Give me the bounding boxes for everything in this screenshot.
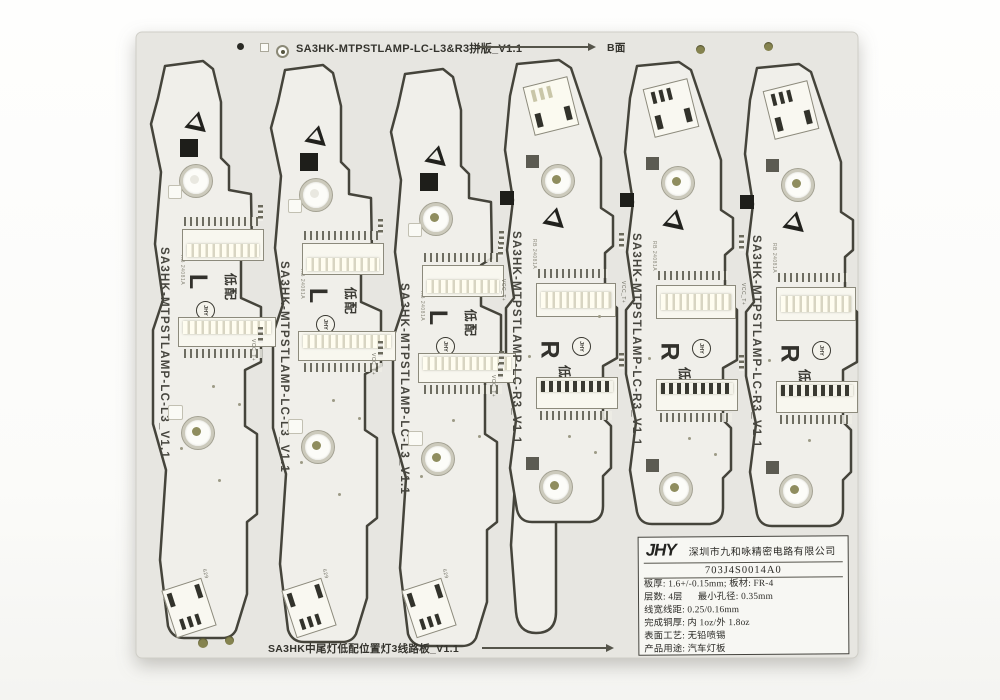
board-label: SA3HK-MTPSTLAMP-LC-L3_V1.1 <box>278 261 290 473</box>
edge-pads <box>739 355 744 371</box>
panel-title: SA3HK-MTPSTLAMP-LC-L3&R3拼版_V1.1 <box>296 40 522 56</box>
tilted-footprint <box>643 78 700 138</box>
board-2-silkscreen: SA3HK-MTPSTLAMP-LC-L3_V1.1 RB 24081A L 低… <box>266 69 384 640</box>
edge-pads <box>619 233 624 249</box>
board-label: SA3HK-MTPSTLAMP-LC-R3_V1.1 <box>510 231 522 444</box>
marking-letter: R <box>535 340 564 358</box>
fiducial-square <box>260 43 269 52</box>
marking-letter: L <box>423 310 452 325</box>
mounting-hole <box>182 417 214 449</box>
gray-square-pad <box>526 155 539 168</box>
black-square-pad <box>620 193 634 207</box>
spec-sticker: JHY 深圳市九和咏精密电路有限公司 703J4S0014A0 板厚: 1.6+… <box>638 535 850 655</box>
sticker-spec-line: 产品用途: 汽车灯板 <box>644 642 843 656</box>
connector-footprint <box>182 229 264 261</box>
fiducial-dot <box>696 45 705 54</box>
black-square-pad <box>420 173 438 191</box>
mounting-hole <box>542 165 574 197</box>
jhy-logo-circle: JHY <box>572 337 591 356</box>
esd-triangle-icon <box>184 109 209 132</box>
board-2: SA3HK-MTPSTLAMP-LC-L3_V1.1 RB 24081A L 低… <box>266 55 384 640</box>
pad-row <box>540 411 612 420</box>
sticker-part-number: 703J4S0014A0 <box>644 562 843 578</box>
pad-row <box>538 269 608 278</box>
fiducial-dot <box>225 636 234 645</box>
edge-pads <box>619 353 624 369</box>
edge-pads <box>378 341 383 357</box>
config-text: 低配 <box>222 273 241 302</box>
edge-pads <box>258 327 263 343</box>
board-6-silkscreen: SA3HK-MTPSTLAMP-LC-R3_V1.1 RB 24081A R J… <box>738 59 856 528</box>
pad-row <box>184 217 258 226</box>
sticker-header: JHY 深圳市九和咏精密电路有限公司 <box>644 538 843 563</box>
mounting-hole <box>660 473 692 505</box>
edge-pads <box>378 219 383 235</box>
black-square-pad <box>300 153 318 171</box>
board-date-code: RB 24081A <box>531 239 537 269</box>
white-pad <box>408 223 422 237</box>
board-3: SA3HK-MTPSTLAMP-LC-L3_V1.1 RB 24081A L 低… <box>386 55 504 640</box>
jhy-logo-circle: JHY <box>812 341 831 360</box>
connector-footprint <box>656 379 738 411</box>
marking-letter: L <box>183 274 212 289</box>
esd-triangle-icon <box>662 207 687 230</box>
gray-square-pad <box>766 461 779 474</box>
gray-square-pad <box>766 159 779 172</box>
black-square-pad <box>500 191 514 205</box>
tilted-footprint <box>763 80 820 140</box>
net-label: VCC_T+ <box>490 375 496 397</box>
mounting-hole <box>300 179 332 211</box>
sticker-company: 深圳市九和咏精密电路有限公司 <box>689 542 836 558</box>
black-square-pad <box>180 139 198 157</box>
board-date-code: RB 24081A <box>771 243 777 273</box>
gray-square-pad <box>526 457 539 470</box>
mounting-hole <box>420 203 452 235</box>
direction-arrow-top <box>478 46 594 48</box>
connector-footprint <box>776 287 856 321</box>
board-label: SA3HK-MTPSTLAMP-LC-L3_V1.1 <box>158 247 170 459</box>
mounting-hole <box>662 167 694 199</box>
mounting-hole <box>180 165 212 197</box>
esd-triangle-icon <box>304 123 329 146</box>
edge-pads <box>499 231 504 247</box>
edge-pads <box>499 351 504 367</box>
board-5: SA3HK-MTPSTLAMP-LC-R3_V1.1 RB 24081A R J… <box>618 55 736 528</box>
pcb-panel-photo: SA3HK-MTPSTLAMP-LC-L3&R3拼版_V1.1 B面 SA3HK… <box>0 0 1000 700</box>
net-label: VCC_T+ <box>370 353 376 375</box>
sticker-logo: JHY <box>646 540 676 560</box>
pad-row <box>660 413 732 422</box>
side-label: B面 <box>607 40 626 55</box>
marking-letter: L <box>303 288 332 303</box>
white-pad <box>168 185 182 199</box>
connector-footprint <box>536 377 618 409</box>
config-text: 低配 <box>462 309 481 338</box>
fiducial-dot <box>237 43 244 50</box>
pad-row <box>780 415 852 424</box>
connector-footprint <box>302 243 384 275</box>
fiducial-dot <box>764 42 773 51</box>
connector-footprint <box>656 285 736 319</box>
pad-row <box>304 231 378 240</box>
config-text: 低配 <box>342 287 361 316</box>
gray-square-pad <box>646 157 659 170</box>
net-label: VCC_T+ <box>620 281 626 303</box>
pad-row <box>658 271 728 280</box>
esd-triangle-icon <box>542 205 567 228</box>
fiducial-dot <box>198 638 208 648</box>
white-pad <box>288 199 302 213</box>
connector-footprint <box>536 283 616 317</box>
mounting-hole <box>422 443 454 475</box>
gray-square-pad <box>646 459 659 472</box>
board-3-silkscreen: SA3HK-MTPSTLAMP-LC-L3_V1.1 RB 24081A L 低… <box>386 95 504 640</box>
edge-pads <box>258 205 263 221</box>
tilted-footprint <box>523 76 580 136</box>
direction-arrow-bottom <box>482 647 612 649</box>
jhy-logo-circle: JHY <box>692 339 711 358</box>
board-4: SA3HK-MTPSTLAMP-LC-R3_V1.1 RB 24081A R J… <box>498 55 616 645</box>
mounting-hole <box>782 169 814 201</box>
board-5-silkscreen: SA3HK-MTPSTLAMP-LC-R3_V1.1 RB 24081A R J… <box>618 57 736 528</box>
board-label: SA3HK-MTPSTLAMP-LC-R3_V1.1 <box>750 235 762 448</box>
net-label: VCC_T+ <box>740 283 746 305</box>
board-label: SA3HK-MTPSTLAMP-LC-L3_V1.1 <box>398 283 410 495</box>
black-square-pad <box>740 195 754 209</box>
marking-letter: R <box>775 344 804 362</box>
board-label: SA3HK-MTPSTLAMP-LC-R3_V1.1 <box>630 233 642 446</box>
white-pad <box>408 431 423 446</box>
edge-pads <box>739 235 744 251</box>
esd-triangle-icon <box>424 143 449 166</box>
marking-letter: R <box>655 342 684 360</box>
bottom-title: SA3HK中尾灯低配位置灯3线路板_V1.1 <box>268 641 459 656</box>
board-1: SA3HK-MTPSTLAMP-LC-L3_V1.1 RB 24081A L 低… <box>146 55 264 640</box>
mounting-hole <box>780 475 812 507</box>
board-4-silkscreen: SA3HK-MTPSTLAMP-LC-R3_V1.1 RB 24081A R J… <box>498 55 616 645</box>
esd-triangle-icon <box>782 209 807 232</box>
board-6: SA3HK-MTPSTLAMP-LC-R3_V1.1 RB 24081A R J… <box>738 55 856 528</box>
board-date-code: RB 24081A <box>651 241 657 271</box>
pad-row <box>424 253 498 262</box>
white-pad <box>168 405 183 420</box>
mounting-hole <box>302 431 334 463</box>
connector-footprint <box>422 265 504 297</box>
net-label: VCC_T+ <box>250 339 256 361</box>
net-label: VCC_T+ <box>500 279 506 301</box>
pad-row <box>778 273 848 282</box>
mounting-hole <box>540 471 572 503</box>
board-1-silkscreen: SA3HK-MTPSTLAMP-LC-L3_V1.1 RB 24081A L 低… <box>146 55 264 640</box>
connector-footprint <box>776 381 858 413</box>
white-pad <box>288 419 303 434</box>
